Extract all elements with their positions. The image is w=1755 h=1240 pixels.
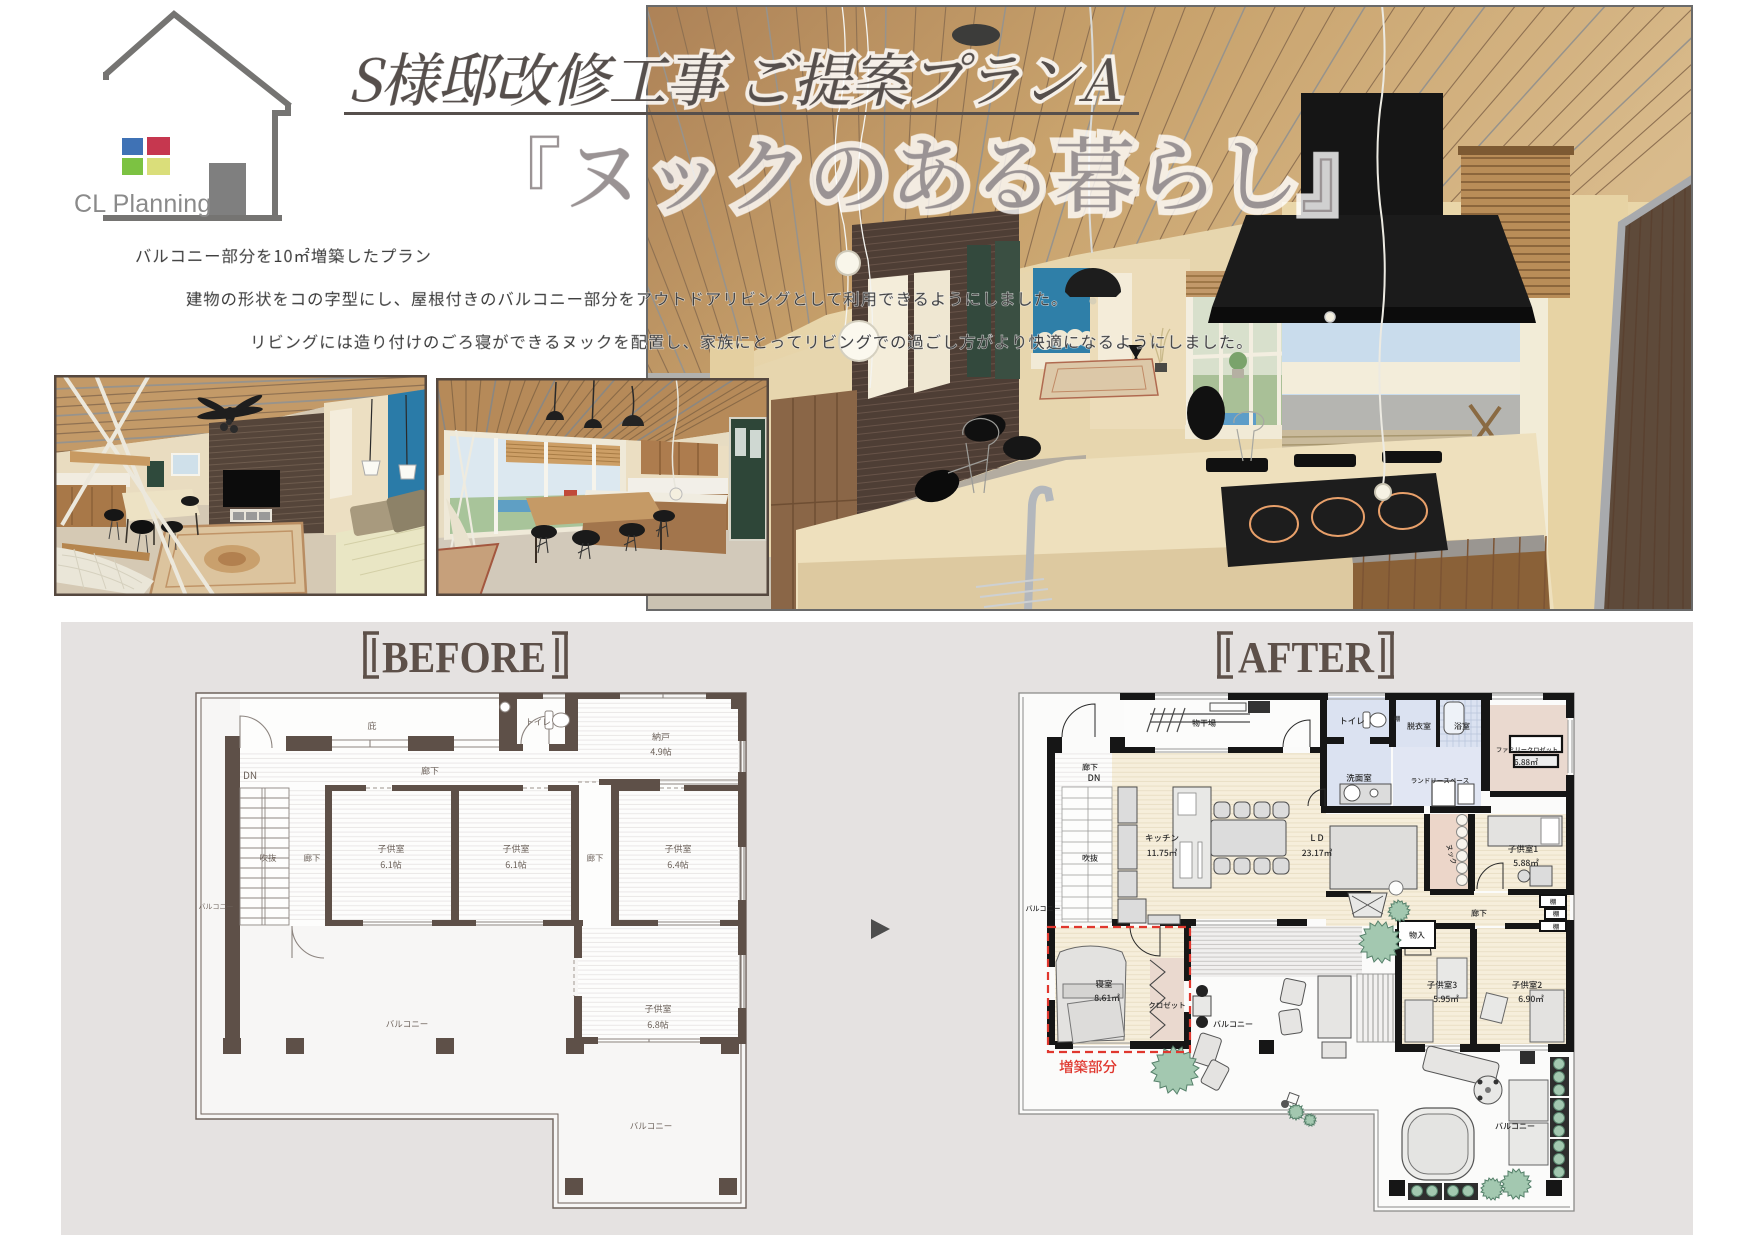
- svg-text:BEFORE: BEFORE: [382, 633, 546, 682]
- svg-text:AFTER: AFTER: [1238, 633, 1375, 682]
